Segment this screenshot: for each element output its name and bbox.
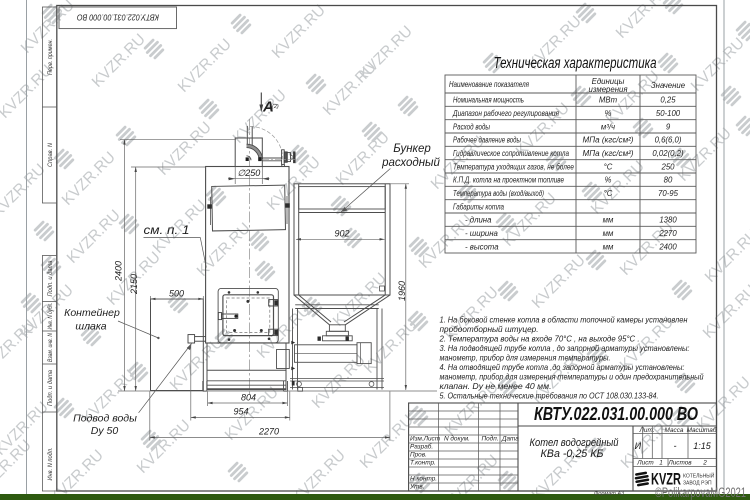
svg-text:И: И xyxy=(635,441,642,451)
svg-text:мм: мм xyxy=(603,229,614,238)
svg-text:0,02(0,2): 0,02(0,2) xyxy=(652,149,684,158)
svg-text:Дата: Дата xyxy=(501,436,519,443)
svg-text:Утв.: Утв. xyxy=(409,484,425,491)
svg-text:Масштаб: Масштаб xyxy=(687,426,717,434)
svg-text:манометр, прибор для измерени: манометр, прибор для измерения температу… xyxy=(440,373,704,382)
svg-text:Листов: Листов xyxy=(667,460,692,467)
svg-text:расходный: расходный xyxy=(381,157,440,169)
svg-text:Габариты котла: Габариты котла xyxy=(453,202,505,211)
svg-text:1960: 1960 xyxy=(397,281,407,301)
svg-text:Значение: Значение xyxy=(651,81,686,90)
svg-text:2400: 2400 xyxy=(114,261,124,282)
svg-text:902: 902 xyxy=(334,229,349,239)
svg-text:Лист: Лист xyxy=(636,460,654,467)
svg-text:мм: мм xyxy=(603,242,614,251)
svg-text:Инв. N подл.: Инв. N подл. xyxy=(47,448,54,481)
svg-text:°С: °С xyxy=(604,189,613,198)
svg-text:- длина: - длина xyxy=(465,216,492,225)
svg-text:Справ. N: Справ. N xyxy=(47,143,54,167)
svg-text:3. На подводящей трубе котла: 3. На подводящей трубе котла , до запорн… xyxy=(440,344,690,353)
svg-text:измерения: измерения xyxy=(588,85,628,94)
svg-text:КВТУ.022.031.00.000 ВО: КВТУ.022.031.00.000 ВО xyxy=(77,12,159,22)
svg-text:2270: 2270 xyxy=(258,427,279,437)
svg-text:80: 80 xyxy=(664,176,673,185)
svg-text:1380: 1380 xyxy=(659,216,677,225)
svg-text:500: 500 xyxy=(169,288,184,298)
svg-text:Рабочее давление воды: Рабочее давление воды xyxy=(453,136,521,145)
svg-text:Масса: Масса xyxy=(665,427,684,434)
svg-text:0,6(6,0): 0,6(6,0) xyxy=(655,136,682,145)
svg-text:см. п. 1: см. п. 1 xyxy=(144,225,190,237)
svg-text:50-100: 50-100 xyxy=(656,109,681,118)
svg-text:°С: °С xyxy=(604,162,613,171)
svg-text:Температура воды (вход/выход): Температура воды (вход/выход) xyxy=(453,189,544,198)
svg-text:70-95: 70-95 xyxy=(658,189,679,198)
svg-text:- ширина: - ширина xyxy=(465,229,499,238)
svg-text:2400: 2400 xyxy=(658,242,677,251)
svg-text:Подп.: Подп. xyxy=(482,435,499,443)
svg-text:МПа (кгс/см²): МПа (кгс/см²) xyxy=(583,149,634,158)
svg-text:-: - xyxy=(674,441,677,451)
svg-text:%: % xyxy=(605,176,612,185)
svg-text:м³/ч: м³/ч xyxy=(601,122,615,131)
svg-text:Перв. примен.: Перв. примен. xyxy=(47,39,54,75)
svg-text:1: 1 xyxy=(659,460,663,467)
svg-text:4. На отводящей трубе котла ,: 4. На отводящей трубе котла ,до запорной… xyxy=(440,363,685,372)
svg-text:2: 2 xyxy=(702,460,707,467)
svg-text:Бункер: Бункер xyxy=(393,143,431,155)
svg-text:804: 804 xyxy=(241,392,256,402)
svg-text:Инв. N дубл.: Инв. N дубл. xyxy=(47,303,54,330)
svg-text:Диапазон рабочего регулировани: Диапазон рабочего регулирования xyxy=(452,109,560,118)
svg-text:Номинальная мощность: Номинальная мощность xyxy=(453,96,524,105)
svg-text:Наименование показателя: Наименование показателя xyxy=(449,80,530,89)
svg-text:КОТЕЛЬНЫЙ: КОТЕЛЬНЫЙ xyxy=(683,472,715,480)
svg-text:КВТУ.022.031.00.000 ВО: КВТУ.022.031.00.000 ВО xyxy=(534,404,698,424)
svg-text:N докум.: N докум. xyxy=(444,435,470,443)
svg-text:(2): (2) xyxy=(272,104,279,110)
svg-text:Подп. и дата: Подп. и дата xyxy=(47,260,54,297)
svg-text:Dу 50: Dу 50 xyxy=(91,425,119,437)
svg-text:954: 954 xyxy=(233,407,248,417)
svg-text:мм: мм xyxy=(603,216,614,225)
svg-text:Изм.Лист: Изм.Лист xyxy=(410,436,441,443)
svg-text:2270: 2270 xyxy=(658,229,677,238)
svg-text:пробоотборный штуцер.: пробоотборный штуцер. xyxy=(440,325,539,334)
svg-text:Подп. и дата: Подп. и дата xyxy=(47,369,54,406)
svg-text:Температура уходящих газов, не: Температура уходящих газов, не более xyxy=(453,162,575,171)
svg-text:1:15: 1:15 xyxy=(693,441,712,451)
svg-text:%: % xyxy=(605,109,612,118)
svg-text:КВа -0,25 КБ: КВа -0,25 КБ xyxy=(541,448,604,460)
svg-text:©PolikarpovaMG2021: ©PolikarpovaMG2021 xyxy=(655,485,746,500)
svg-text:клапан. Dу не менее 40 мм.: клапан. Dу не менее 40 мм. xyxy=(440,382,552,391)
svg-text:2. Температура воды на входе: 2. Температура воды на входе 70°С , на в… xyxy=(439,334,640,343)
svg-text:Формат А3: Формат А3 xyxy=(594,491,625,497)
svg-text:Техническая характеристика: Техническая характеристика xyxy=(494,55,657,72)
svg-text:250: 250 xyxy=(660,162,675,171)
svg-text:∅250: ∅250 xyxy=(237,168,260,178)
svg-text:0,25: 0,25 xyxy=(660,96,676,105)
svg-text:2150: 2150 xyxy=(129,274,139,295)
svg-text:1. На боковой стенке котла в: 1. На боковой стенке котла в области топ… xyxy=(440,315,688,324)
svg-text:5. Остальные технические треб: 5. Остальные технические требования по О… xyxy=(440,392,659,401)
svg-text:Лит.: Лит. xyxy=(639,427,655,434)
svg-text:Расход воды: Расход воды xyxy=(453,122,490,131)
svg-text:Контейнер: Контейнер xyxy=(64,307,120,319)
svg-text:Пров.: Пров. xyxy=(410,452,427,459)
svg-text:9: 9 xyxy=(666,122,671,131)
svg-text:Подвод воды: Подвод воды xyxy=(73,413,137,425)
svg-text:Н.контр.: Н.контр. xyxy=(410,476,437,483)
svg-text:Т.контр.: Т.контр. xyxy=(410,460,436,467)
svg-text:Гидравлическое сопротивление к: Гидравлическое сопротивление котла xyxy=(453,149,570,158)
svg-text:Разраб.: Разраб. xyxy=(410,443,433,451)
svg-text:МПа (кгс/см²): МПа (кгс/см²) xyxy=(583,136,634,145)
svg-text:К.П.Д. котла на проектном топл: К.П.Д. котла на проектном топливе xyxy=(453,176,565,185)
svg-text:Взам. инв. N: Взам. инв. N xyxy=(47,333,54,362)
svg-text:- высота: - высота xyxy=(465,242,499,251)
svg-text:манометр, прибор для измерени: манометр, прибор для измерения температу… xyxy=(440,354,611,363)
svg-text:шлака: шлака xyxy=(75,321,106,333)
svg-text:МВт: МВт xyxy=(599,96,618,105)
